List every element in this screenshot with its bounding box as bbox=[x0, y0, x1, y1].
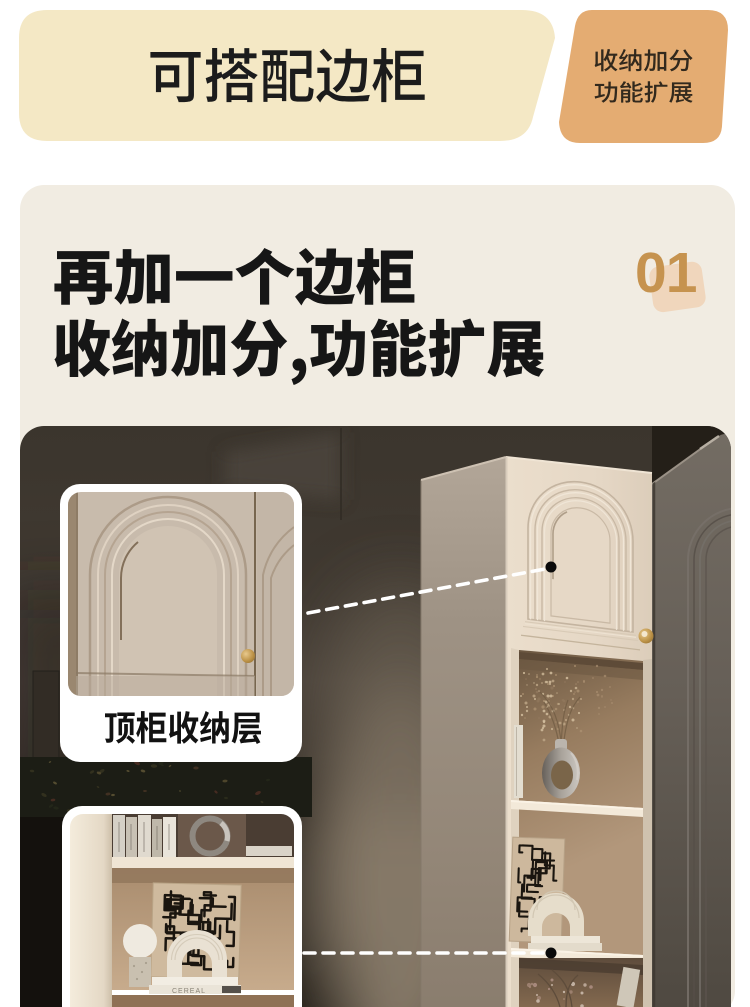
svg-text:01: 01 bbox=[635, 241, 697, 305]
svg-text:CEREAL: CEREAL bbox=[172, 988, 206, 995]
